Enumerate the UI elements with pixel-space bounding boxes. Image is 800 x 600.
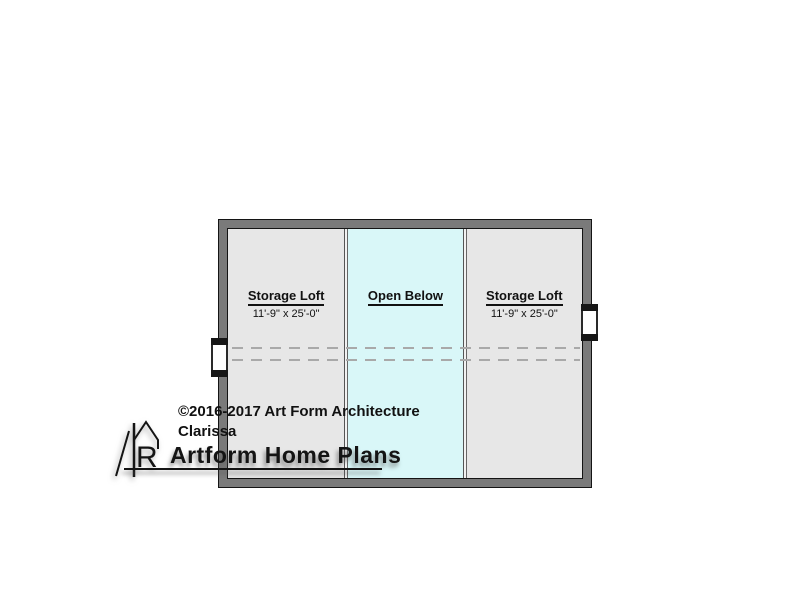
window-frame-cap xyxy=(211,338,228,345)
room-title: Open Below xyxy=(368,288,443,306)
room-label: Open Below xyxy=(348,287,462,320)
room-label: Storage Loft 11'-9" x 25'-0" xyxy=(228,287,344,320)
room-dimensions: 11'-9" x 25'-0" xyxy=(467,308,582,320)
room-storage-loft-right: Storage Loft 11'-9" x 25'-0" xyxy=(467,229,582,478)
copyright-text: ©2016-2017 Art Form Architecture xyxy=(178,402,420,422)
room-dimensions xyxy=(348,308,462,320)
room-label: Storage Loft 11'-9" x 25'-0" xyxy=(467,287,582,320)
window-frame-cap xyxy=(581,334,598,341)
ridge-dashed-line-lower xyxy=(232,359,580,361)
window-glass xyxy=(581,311,598,334)
page-canvas: Storage Loft 11'-9" x 25'-0" Open Below … xyxy=(0,0,800,600)
window-frame-cap xyxy=(211,370,228,377)
plan-name: Clarissa xyxy=(178,422,420,442)
room-title: Storage Loft xyxy=(486,288,563,306)
window-symbol-right xyxy=(581,304,598,341)
room-dimensions: 11'-9" x 25'-0" xyxy=(228,308,344,320)
brand-underline xyxy=(124,468,382,470)
brand-name: Artform Home Plans xyxy=(170,442,401,469)
window-frame-cap xyxy=(581,304,598,311)
room-title: Storage Loft xyxy=(248,288,325,306)
ridge-dashed-line-upper xyxy=(232,347,580,349)
window-glass xyxy=(211,345,228,370)
window-symbol-left xyxy=(211,338,228,377)
copyright-block: ©2016-2017 Art Form Architecture Clariss… xyxy=(178,402,420,442)
